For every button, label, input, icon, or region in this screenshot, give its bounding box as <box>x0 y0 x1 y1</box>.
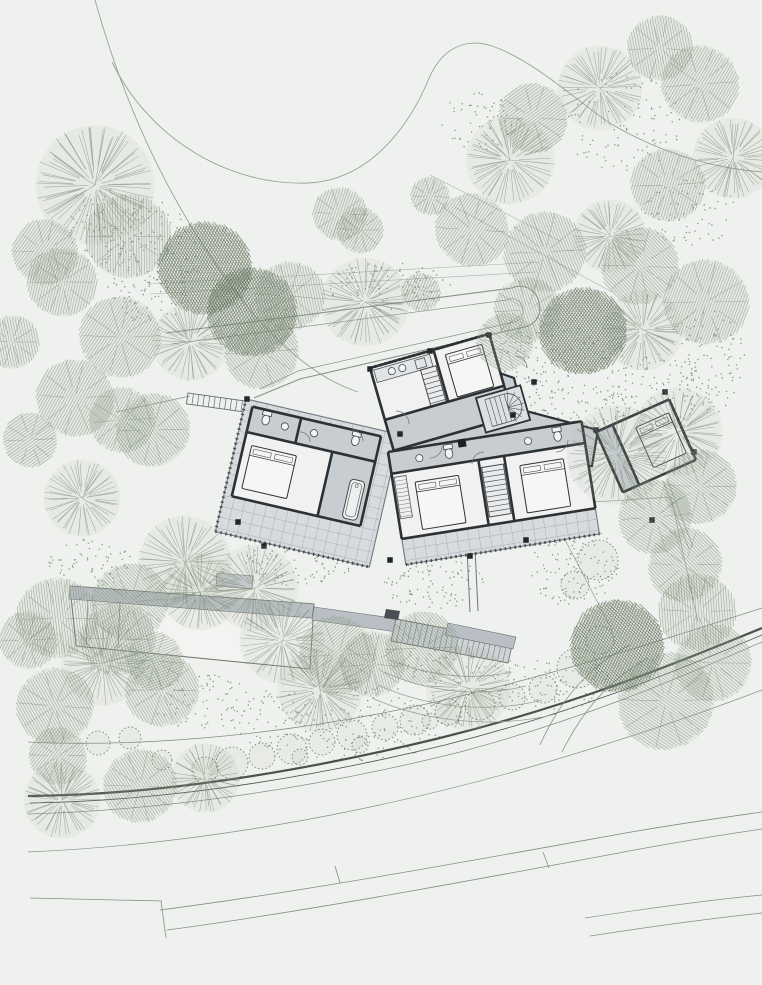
shrub <box>578 540 618 580</box>
shrub <box>422 713 438 729</box>
shrub <box>216 747 248 779</box>
shrub <box>86 731 110 755</box>
shrub <box>352 737 368 753</box>
bed <box>415 475 466 529</box>
tree <box>86 193 170 278</box>
tree <box>29 727 87 785</box>
bed <box>242 445 297 498</box>
shrub <box>309 729 335 755</box>
tree <box>659 574 736 651</box>
shrub <box>561 571 589 599</box>
shrub <box>249 743 275 769</box>
shrub <box>192 757 218 783</box>
site-plan-drawing <box>0 0 762 985</box>
shrub <box>557 648 597 688</box>
shrub <box>152 750 172 770</box>
fireplace <box>457 438 466 447</box>
shrub <box>465 690 495 720</box>
shrub <box>119 727 141 749</box>
shrub <box>586 626 614 654</box>
tree <box>152 304 229 381</box>
shrub <box>372 714 398 740</box>
bed <box>520 459 571 513</box>
tree <box>278 648 363 732</box>
shrub <box>292 749 308 765</box>
architectural-site-plan <box>0 0 762 985</box>
shrub <box>499 684 525 710</box>
tree <box>44 460 121 537</box>
tree <box>321 258 409 346</box>
shrub <box>529 675 557 703</box>
shrub <box>435 699 461 725</box>
